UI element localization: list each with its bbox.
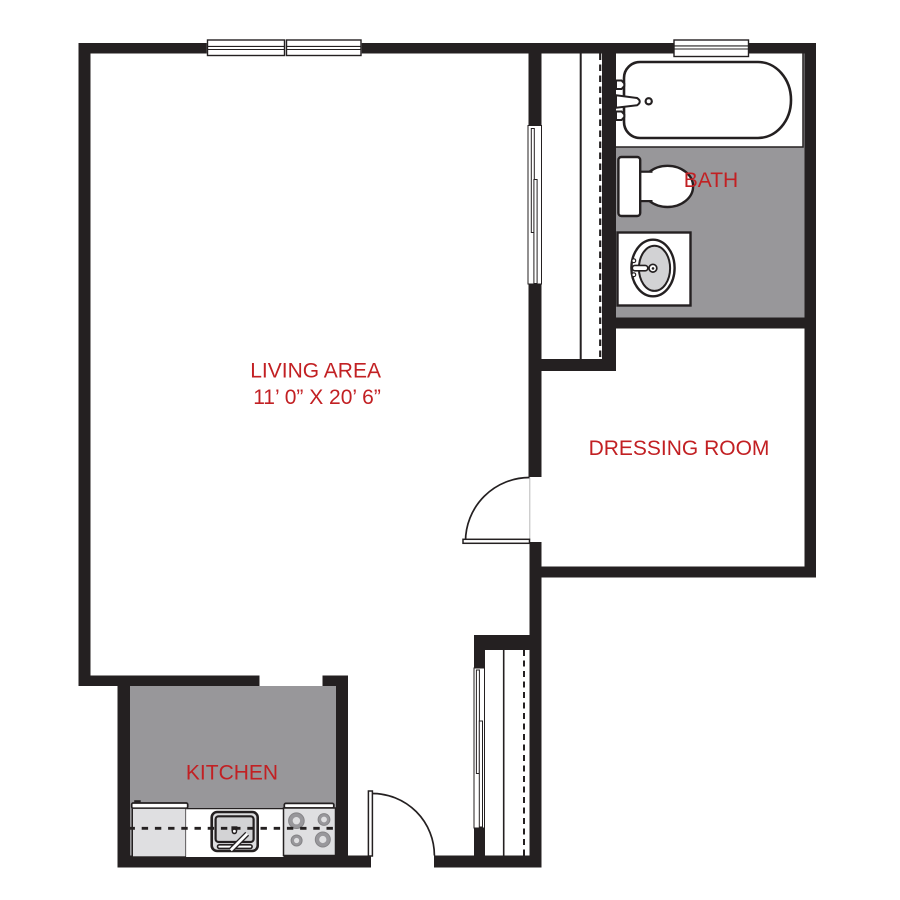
svg-text:BATH: BATH (684, 169, 738, 192)
svg-text:LIVING AREA: LIVING AREA (250, 360, 381, 383)
svg-text:DRESSING ROOM: DRESSING ROOM (589, 437, 770, 460)
svg-text:11’ 0” X 20’ 6”: 11’ 0” X 20’ 6” (253, 386, 381, 409)
svg-text:KITCHEN: KITCHEN (186, 762, 278, 785)
